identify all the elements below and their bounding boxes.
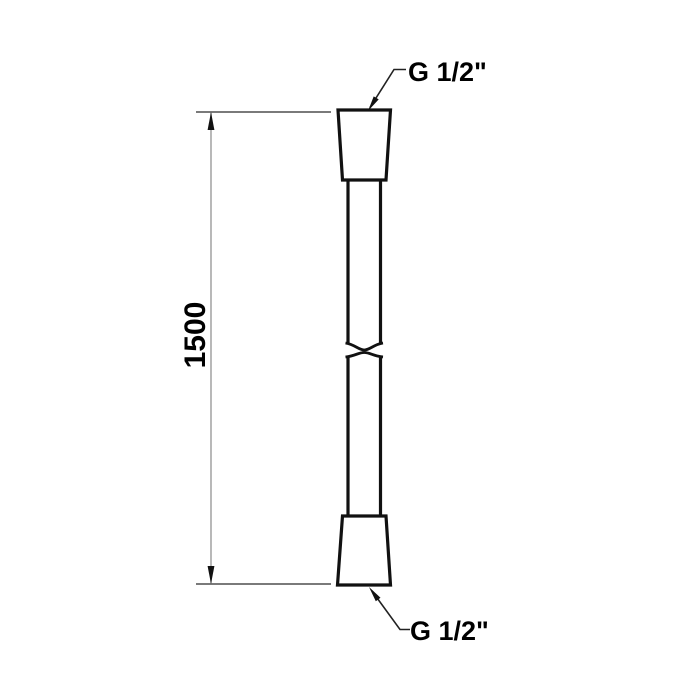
break-symbol-lower: [346, 353, 384, 358]
dimension-group: 1500: [179, 112, 331, 584]
hose-top-connector: [338, 110, 391, 180]
dimension-value-label: 1500: [179, 302, 212, 369]
bottom-connector-label: G 1/2": [410, 616, 489, 646]
technical-drawing: 1500 G 1/2" G 1/2": [0, 0, 700, 700]
break-symbol-upper: [346, 343, 384, 350]
hose-group: [338, 110, 391, 585]
diagram-canvas: 1500 G 1/2" G 1/2": [0, 0, 700, 700]
hose-bottom-connector: [338, 516, 391, 585]
top-connector-label: G 1/2": [408, 57, 487, 87]
dimension-arrow-down-icon: [208, 566, 215, 584]
dimension-arrow-up-icon: [208, 112, 215, 130]
